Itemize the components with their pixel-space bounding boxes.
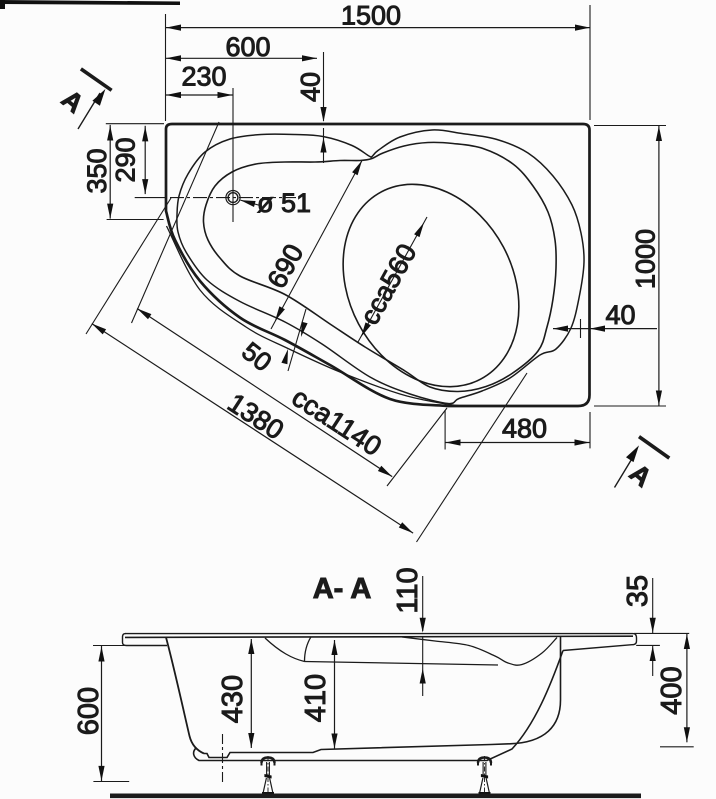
svg-text:110: 110 [392,567,424,613]
svg-text:230: 230 [181,62,226,92]
svg-text:A- A: A- A [313,573,372,605]
svg-text:290: 290 [111,137,141,182]
svg-text:480: 480 [502,414,547,444]
svg-text:1500: 1500 [341,1,401,31]
svg-text:600: 600 [73,687,105,735]
svg-text:690: 690 [262,239,310,293]
svg-text:50: 50 [236,336,277,377]
svg-text:cca1140: cca1140 [287,382,387,462]
svg-text:1380: 1380 [222,387,289,445]
svg-text:430: 430 [217,675,249,723]
svg-text:A: A [56,84,90,119]
svg-text:cca560: cca560 [354,239,422,330]
svg-text:ø 51: ø 51 [257,188,311,218]
svg-text:350: 350 [82,148,112,193]
svg-text:35: 35 [622,575,654,607]
svg-text:40: 40 [605,300,635,330]
svg-text:410: 410 [300,674,332,722]
svg-text:40: 40 [296,72,326,102]
svg-text:600: 600 [225,32,270,62]
svg-text:400: 400 [656,666,688,714]
svg-text:1000: 1000 [631,229,661,289]
